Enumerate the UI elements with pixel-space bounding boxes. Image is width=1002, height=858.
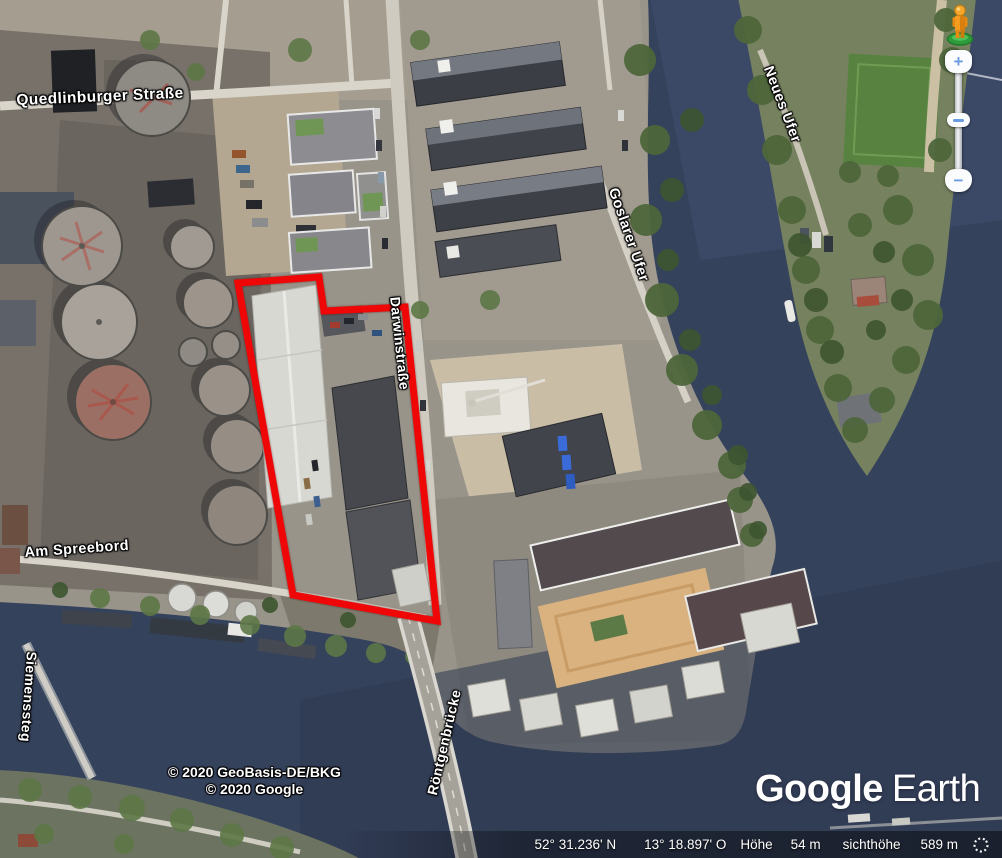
satellite-imagery[interactable] [0, 0, 1002, 858]
longitude-readout: 13° 18.897' O [644, 837, 726, 852]
zoom-thumb-bar [953, 119, 964, 122]
status-bar: 52° 31.236' N 13° 18.897' O Höhe 54 m si… [0, 831, 1002, 858]
google-earth-logo: GoogleEarth [755, 768, 980, 811]
logo-google: Google [755, 768, 883, 810]
eye-altitude-label: sichthöhe [843, 837, 901, 852]
streaming-spinner-icon [972, 836, 990, 854]
zoom-slider[interactable]: + − [944, 48, 974, 198]
latitude-readout: 52° 31.236' N [535, 837, 617, 852]
zoom-in-button[interactable]: + [945, 50, 972, 73]
zoom-slider-thumb[interactable] [947, 113, 970, 127]
google-earth-viewport[interactable]: Quedlinburger Straße Darwinstraße Goslar… [0, 0, 1002, 858]
pegman-icon [942, 2, 978, 46]
attribution-line-2: © 2020 Google [168, 781, 341, 798]
logo-earth: Earth [892, 768, 980, 810]
zoom-out-button[interactable]: − [945, 169, 972, 192]
altitude-label: Höhe [740, 837, 772, 852]
attribution-line-1: © 2020 GeoBasis-DE/BKG [168, 764, 341, 781]
pegman-control[interactable] [942, 2, 978, 46]
altitude-value: 54 m [791, 837, 821, 852]
map-attribution: © 2020 GeoBasis-DE/BKG © 2020 Google [168, 764, 341, 798]
eye-altitude-value: 589 m [920, 837, 958, 852]
